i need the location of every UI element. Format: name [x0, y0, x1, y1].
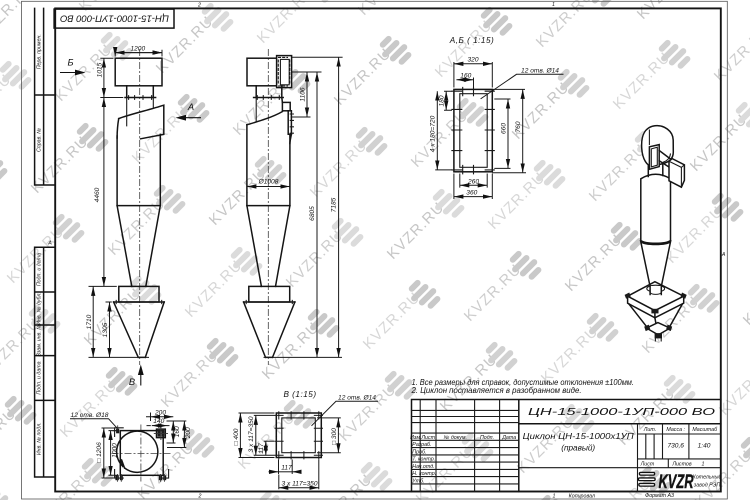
svg-text:160: 160 [460, 73, 471, 80]
svg-text:Дата: Дата [501, 435, 516, 441]
svg-text:Утб.: Утб. [412, 478, 424, 484]
svg-text:KVZR.RU: KVZR.RU [740, 265, 750, 329]
svg-text:Нач.отд.: Нач.отд. [412, 464, 434, 470]
svg-text:KVZR.RU: KVZR.RU [0, 0, 39, 43]
svg-text:Инв. № подл.: Инв. № подл. [36, 422, 42, 455]
svg-text:KVZR.RU: KVZR.RU [33, 467, 97, 500]
svg-text:В (1:15): В (1:15) [283, 390, 316, 399]
svg-text:Проб.: Проб. [412, 449, 426, 455]
svg-text:12 отв. Ø14: 12 отв. Ø14 [338, 395, 376, 402]
svg-text:1305: 1305 [102, 322, 109, 337]
svg-text:117: 117 [258, 443, 265, 454]
svg-text:KVZR.RU: KVZR.RU [634, 0, 698, 23]
svg-text:260: 260 [467, 178, 479, 185]
svg-text:(правый): (правый) [561, 444, 595, 453]
svg-text:200: 200 [185, 427, 192, 439]
svg-text:ЦН-15-1000-1УП-000 ВО: ЦН-15-1000-1УП-000 ВО [528, 407, 715, 418]
svg-text:Лист: Лист [420, 435, 435, 441]
svg-text:1000: 1000 [112, 443, 119, 458]
svg-text:1: 1 [553, 494, 556, 500]
svg-text:Масса :: Масса : [666, 427, 685, 433]
svg-text:KVZR.RU: KVZR.RU [254, 0, 318, 47]
svg-text:Изм.: Изм. [410, 435, 421, 441]
svg-text:Т. контр.: Т. контр. [412, 457, 435, 463]
svg-text:1015: 1015 [97, 62, 104, 77]
svg-text:Лист: Лист [640, 462, 655, 468]
svg-text:А,Б ( 1:15): А,Б ( 1:15) [449, 36, 495, 45]
svg-text:Н. контр.: Н. контр. [412, 471, 436, 477]
svg-text:Котельный: Котельный [693, 474, 722, 481]
svg-text:Перв. примен.: Перв. примен. [36, 34, 42, 69]
svg-text:2: 2 [198, 494, 202, 500]
svg-text:1200: 1200 [130, 46, 145, 53]
svg-text:KVZR.RU: KVZR.RU [711, 21, 750, 85]
svg-text:2. Циклон поставляется в разоб: 2. Циклон поставляется в разобранном вид… [411, 385, 582, 395]
svg-text:А: А [187, 102, 194, 112]
svg-text:KVZR.RU: KVZR.RU [355, 0, 419, 19]
svg-text:Копировал: Копировал [569, 494, 595, 500]
svg-text:760: 760 [515, 121, 522, 132]
svg-text:Масштаб: Масштаб [692, 427, 718, 433]
svg-text:1106: 1106 [299, 87, 306, 102]
svg-text:140: 140 [153, 418, 164, 425]
svg-text:Циклон ЦН-15-1000х1УП: Циклон ЦН-15-1000х1УП [523, 431, 635, 441]
svg-text:Б: Б [67, 58, 73, 68]
svg-text:1710: 1710 [86, 314, 93, 329]
svg-text:6805: 6805 [309, 206, 316, 221]
svg-text:1:40: 1:40 [698, 442, 711, 449]
svg-text:Подп.: Подп. [480, 435, 494, 441]
svg-text:12 отв. Ø18: 12 отв. Ø18 [71, 412, 109, 419]
svg-text:Лит.: Лит. [643, 427, 656, 433]
svg-text:1: 1 [702, 462, 705, 468]
svg-text:завод РЭП: завод РЭП [693, 483, 721, 489]
svg-text:№ докум.: № докум. [444, 435, 467, 441]
svg-text:3 х 117=350: 3 х 117=350 [248, 416, 255, 452]
svg-text:В: В [129, 377, 135, 387]
svg-text:Ø1008: Ø1008 [258, 179, 279, 186]
svg-text:□ 300: □ 300 [331, 428, 338, 445]
svg-text:Формат А3: Формат А3 [645, 493, 674, 499]
svg-text:ЦН-15-1000-1УП-000 ВО: ЦН-15-1000-1УП-000 ВО [59, 12, 169, 23]
svg-text:2: 2 [197, 3, 201, 9]
svg-text:660: 660 [500, 123, 507, 134]
svg-text:Взам. инв. №: Взам. инв. № [36, 324, 42, 357]
svg-text:117: 117 [281, 464, 292, 471]
svg-text:Инв. № дубл.: Инв. № дубл. [36, 292, 42, 325]
svg-text:А: А [47, 241, 52, 247]
svg-text:730,6: 730,6 [667, 442, 684, 449]
svg-text:360: 360 [466, 190, 477, 197]
svg-text:□ 1206: □ 1206 [96, 442, 103, 463]
svg-text:□ 400: □ 400 [233, 428, 240, 445]
svg-text:Разраб.: Разраб. [412, 442, 431, 448]
svg-text:320: 320 [467, 57, 478, 64]
svg-text:12 отв. Ø14: 12 отв. Ø14 [521, 68, 559, 75]
svg-text:Справ. №: Справ. № [36, 128, 42, 152]
svg-text:180: 180 [439, 95, 446, 106]
svg-text:KVZR: KVZR [659, 471, 694, 493]
svg-text:Листов: Листов [671, 462, 692, 468]
svg-text:200: 200 [154, 409, 166, 416]
svg-text:KVZR.RU: KVZR.RU [312, 471, 376, 500]
svg-text:А: А [721, 252, 726, 258]
svg-text:3 х 117=350: 3 х 117=350 [282, 480, 318, 487]
svg-text:7185: 7185 [331, 197, 338, 212]
svg-text:160: 160 [174, 426, 181, 437]
svg-text:4460: 4460 [94, 187, 101, 202]
svg-text:1: 1 [552, 2, 555, 8]
svg-text:Подп. и дата: Подп. и дата [36, 361, 42, 394]
svg-text:4 х 180=720: 4 х 180=720 [430, 115, 437, 152]
svg-text:Подп. и дата: Подп. и дата [36, 253, 42, 286]
